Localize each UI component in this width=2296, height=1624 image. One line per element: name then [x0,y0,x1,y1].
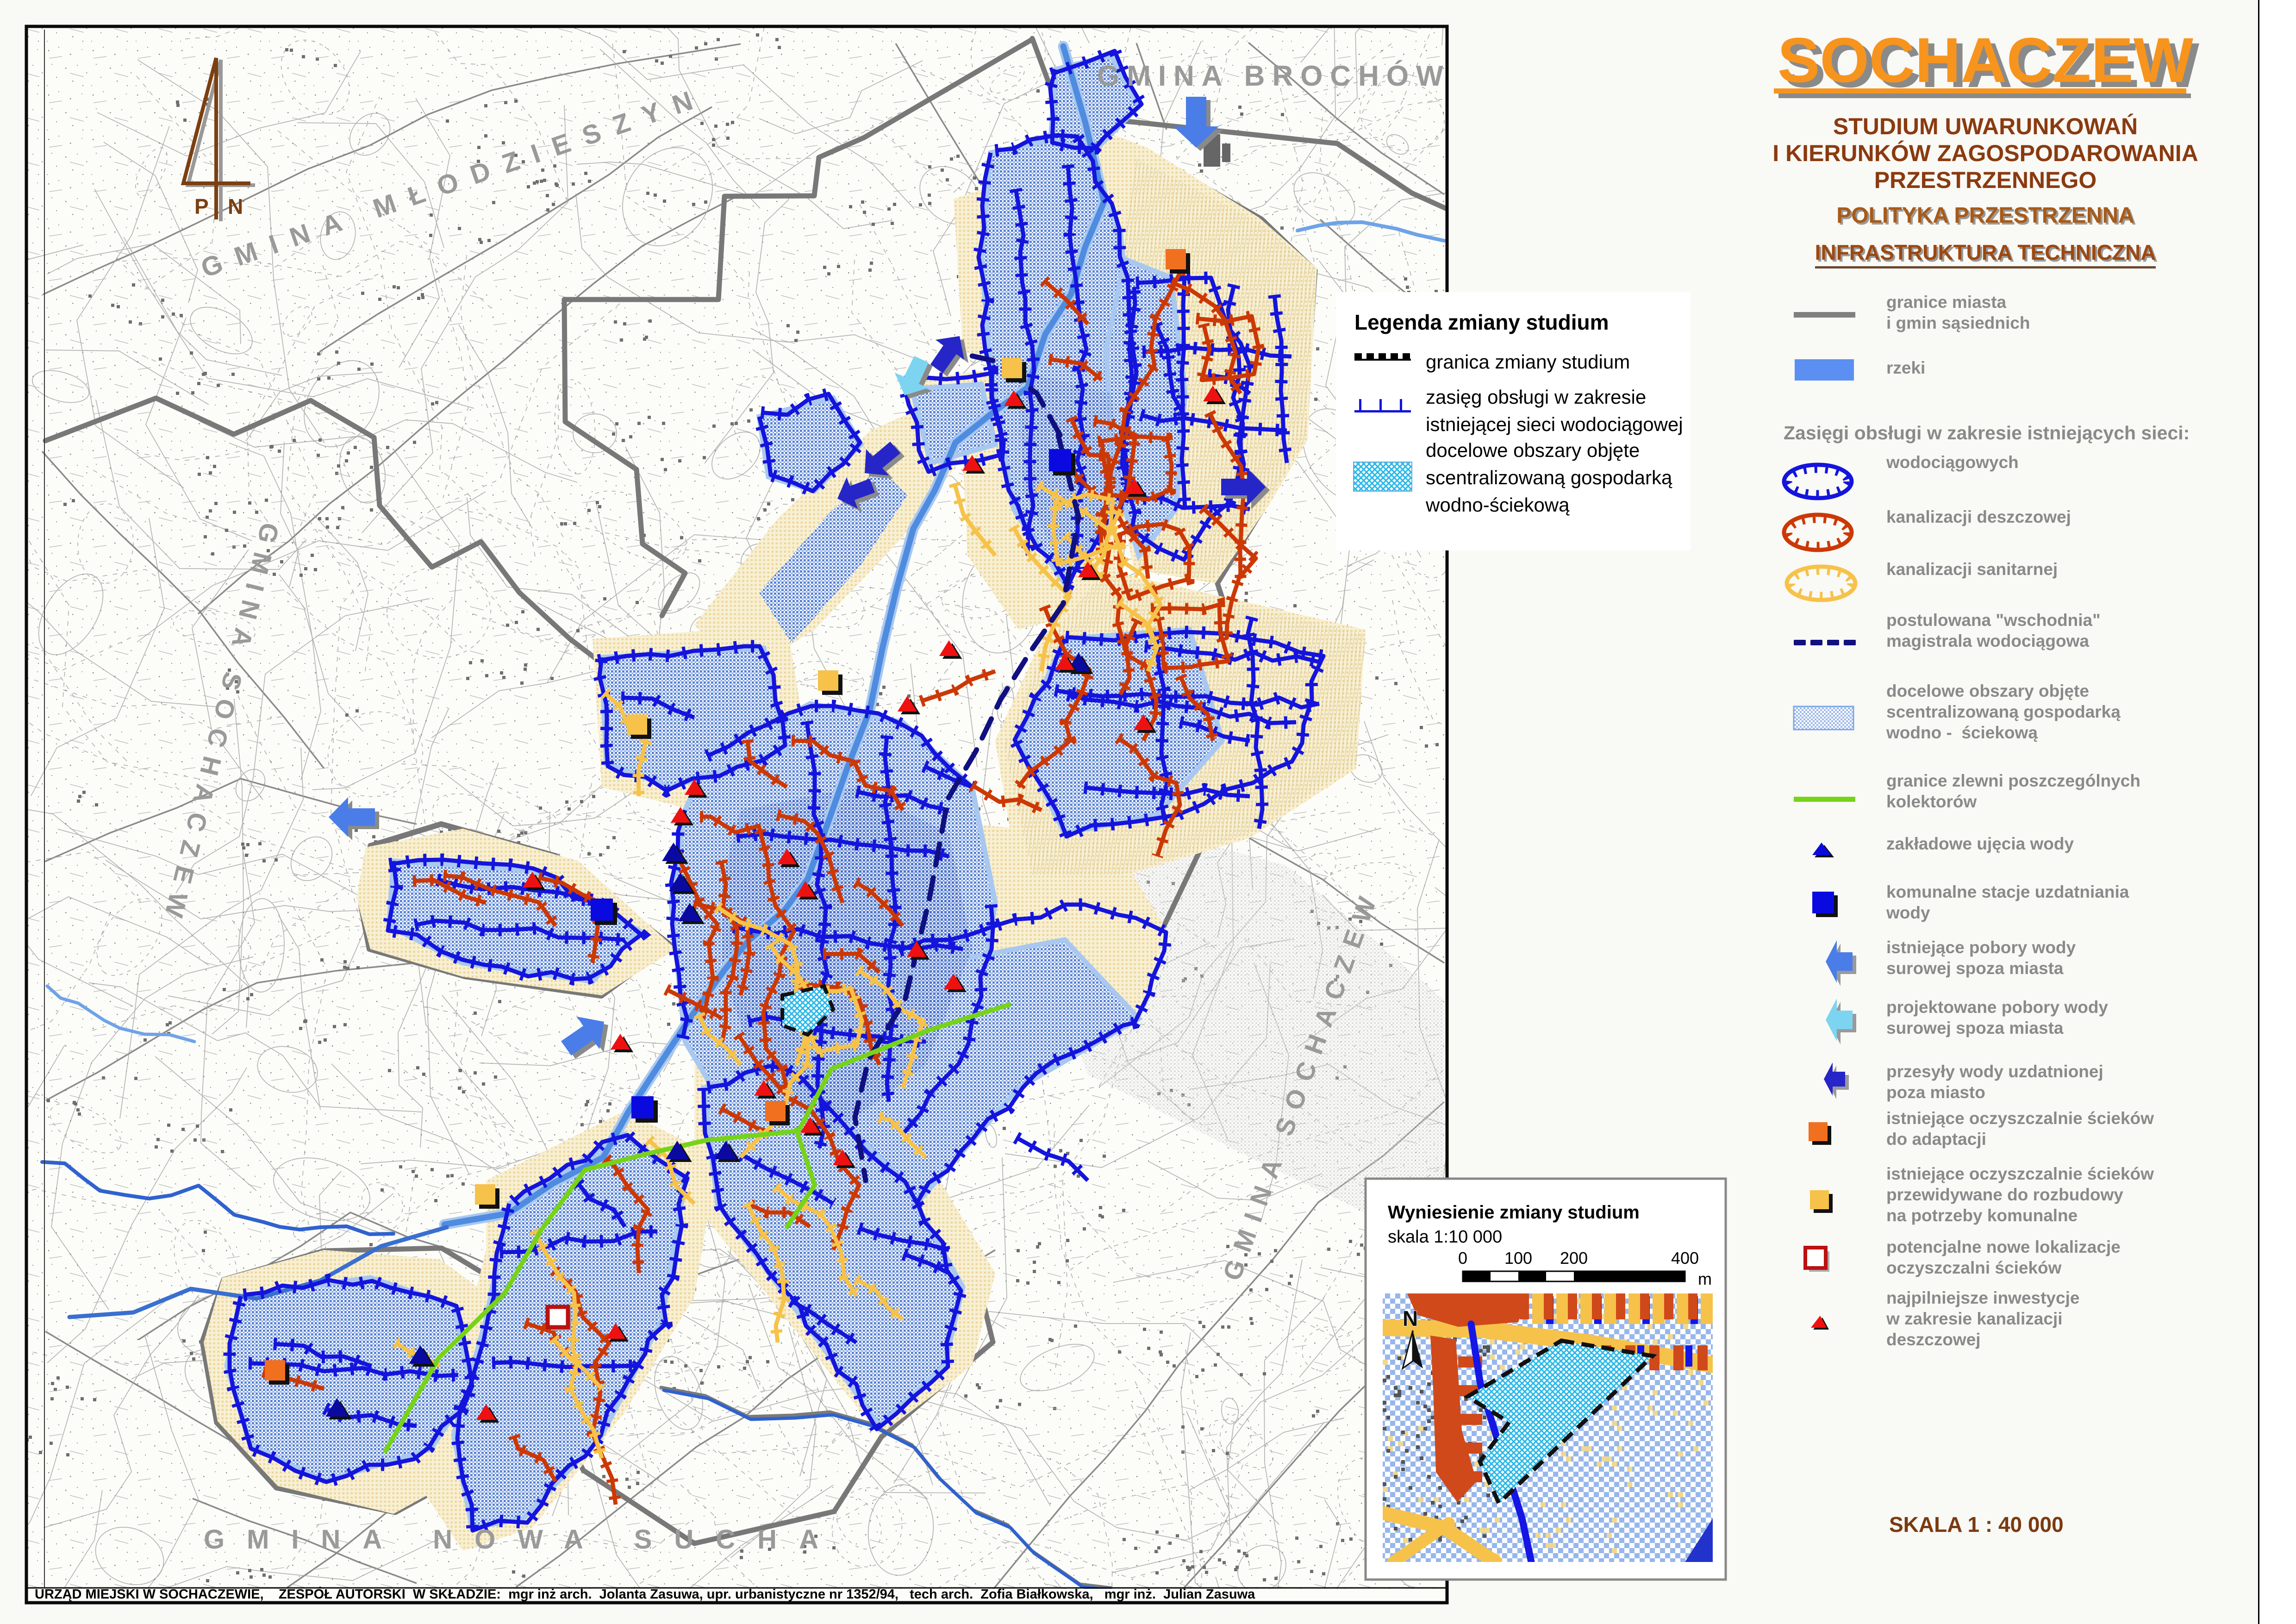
svg-text:m: m [1698,1269,1712,1288]
svg-text:Wyniesienie zmiany studium: Wyniesienie zmiany studium [1388,1202,1640,1223]
svg-text:N: N [228,194,243,219]
svg-text:URZĄD MIEJSKI W SOCHACZEWIE,: URZĄD MIEJSKI W SOCHACZEWIE, ZESPÓŁ AUTO… [35,1586,1255,1602]
svg-text:Legenda zmiany studium: Legenda zmiany studium [1354,310,1609,334]
svg-text:scentralizowaną gospodarką: scentralizowaną gospodarką [1426,467,1672,488]
svg-text:zasięg obsługi w zakresie: zasięg obsługi w zakresie [1426,386,1646,408]
svg-text:wodno-ściekową: wodno-ściekową [1425,494,1570,516]
svg-text:docelowe obszary objęte: docelowe obszary objęte [1426,439,1640,461]
svg-text:istniejącej sieci wodociągowej: istniejącej sieci wodociągowej [1426,413,1683,435]
svg-text:skala 1:10 000: skala 1:10 000 [1388,1227,1502,1247]
svg-text:GMINA NOWA SUCHA: GMINA NOWA SUCHA [204,1524,841,1555]
svg-text:100: 100 [1504,1249,1532,1268]
svg-text:0: 0 [1458,1249,1467,1268]
svg-text:granica zmiany studium: granica zmiany studium [1426,351,1630,373]
svg-text:GMINA BROCHÓW: GMINA BROCHÓW [1097,60,1451,92]
svg-text:400: 400 [1671,1249,1699,1268]
svg-text:P: P [194,194,209,219]
svg-text:200: 200 [1560,1249,1588,1268]
svg-text:N: N [1403,1306,1418,1330]
